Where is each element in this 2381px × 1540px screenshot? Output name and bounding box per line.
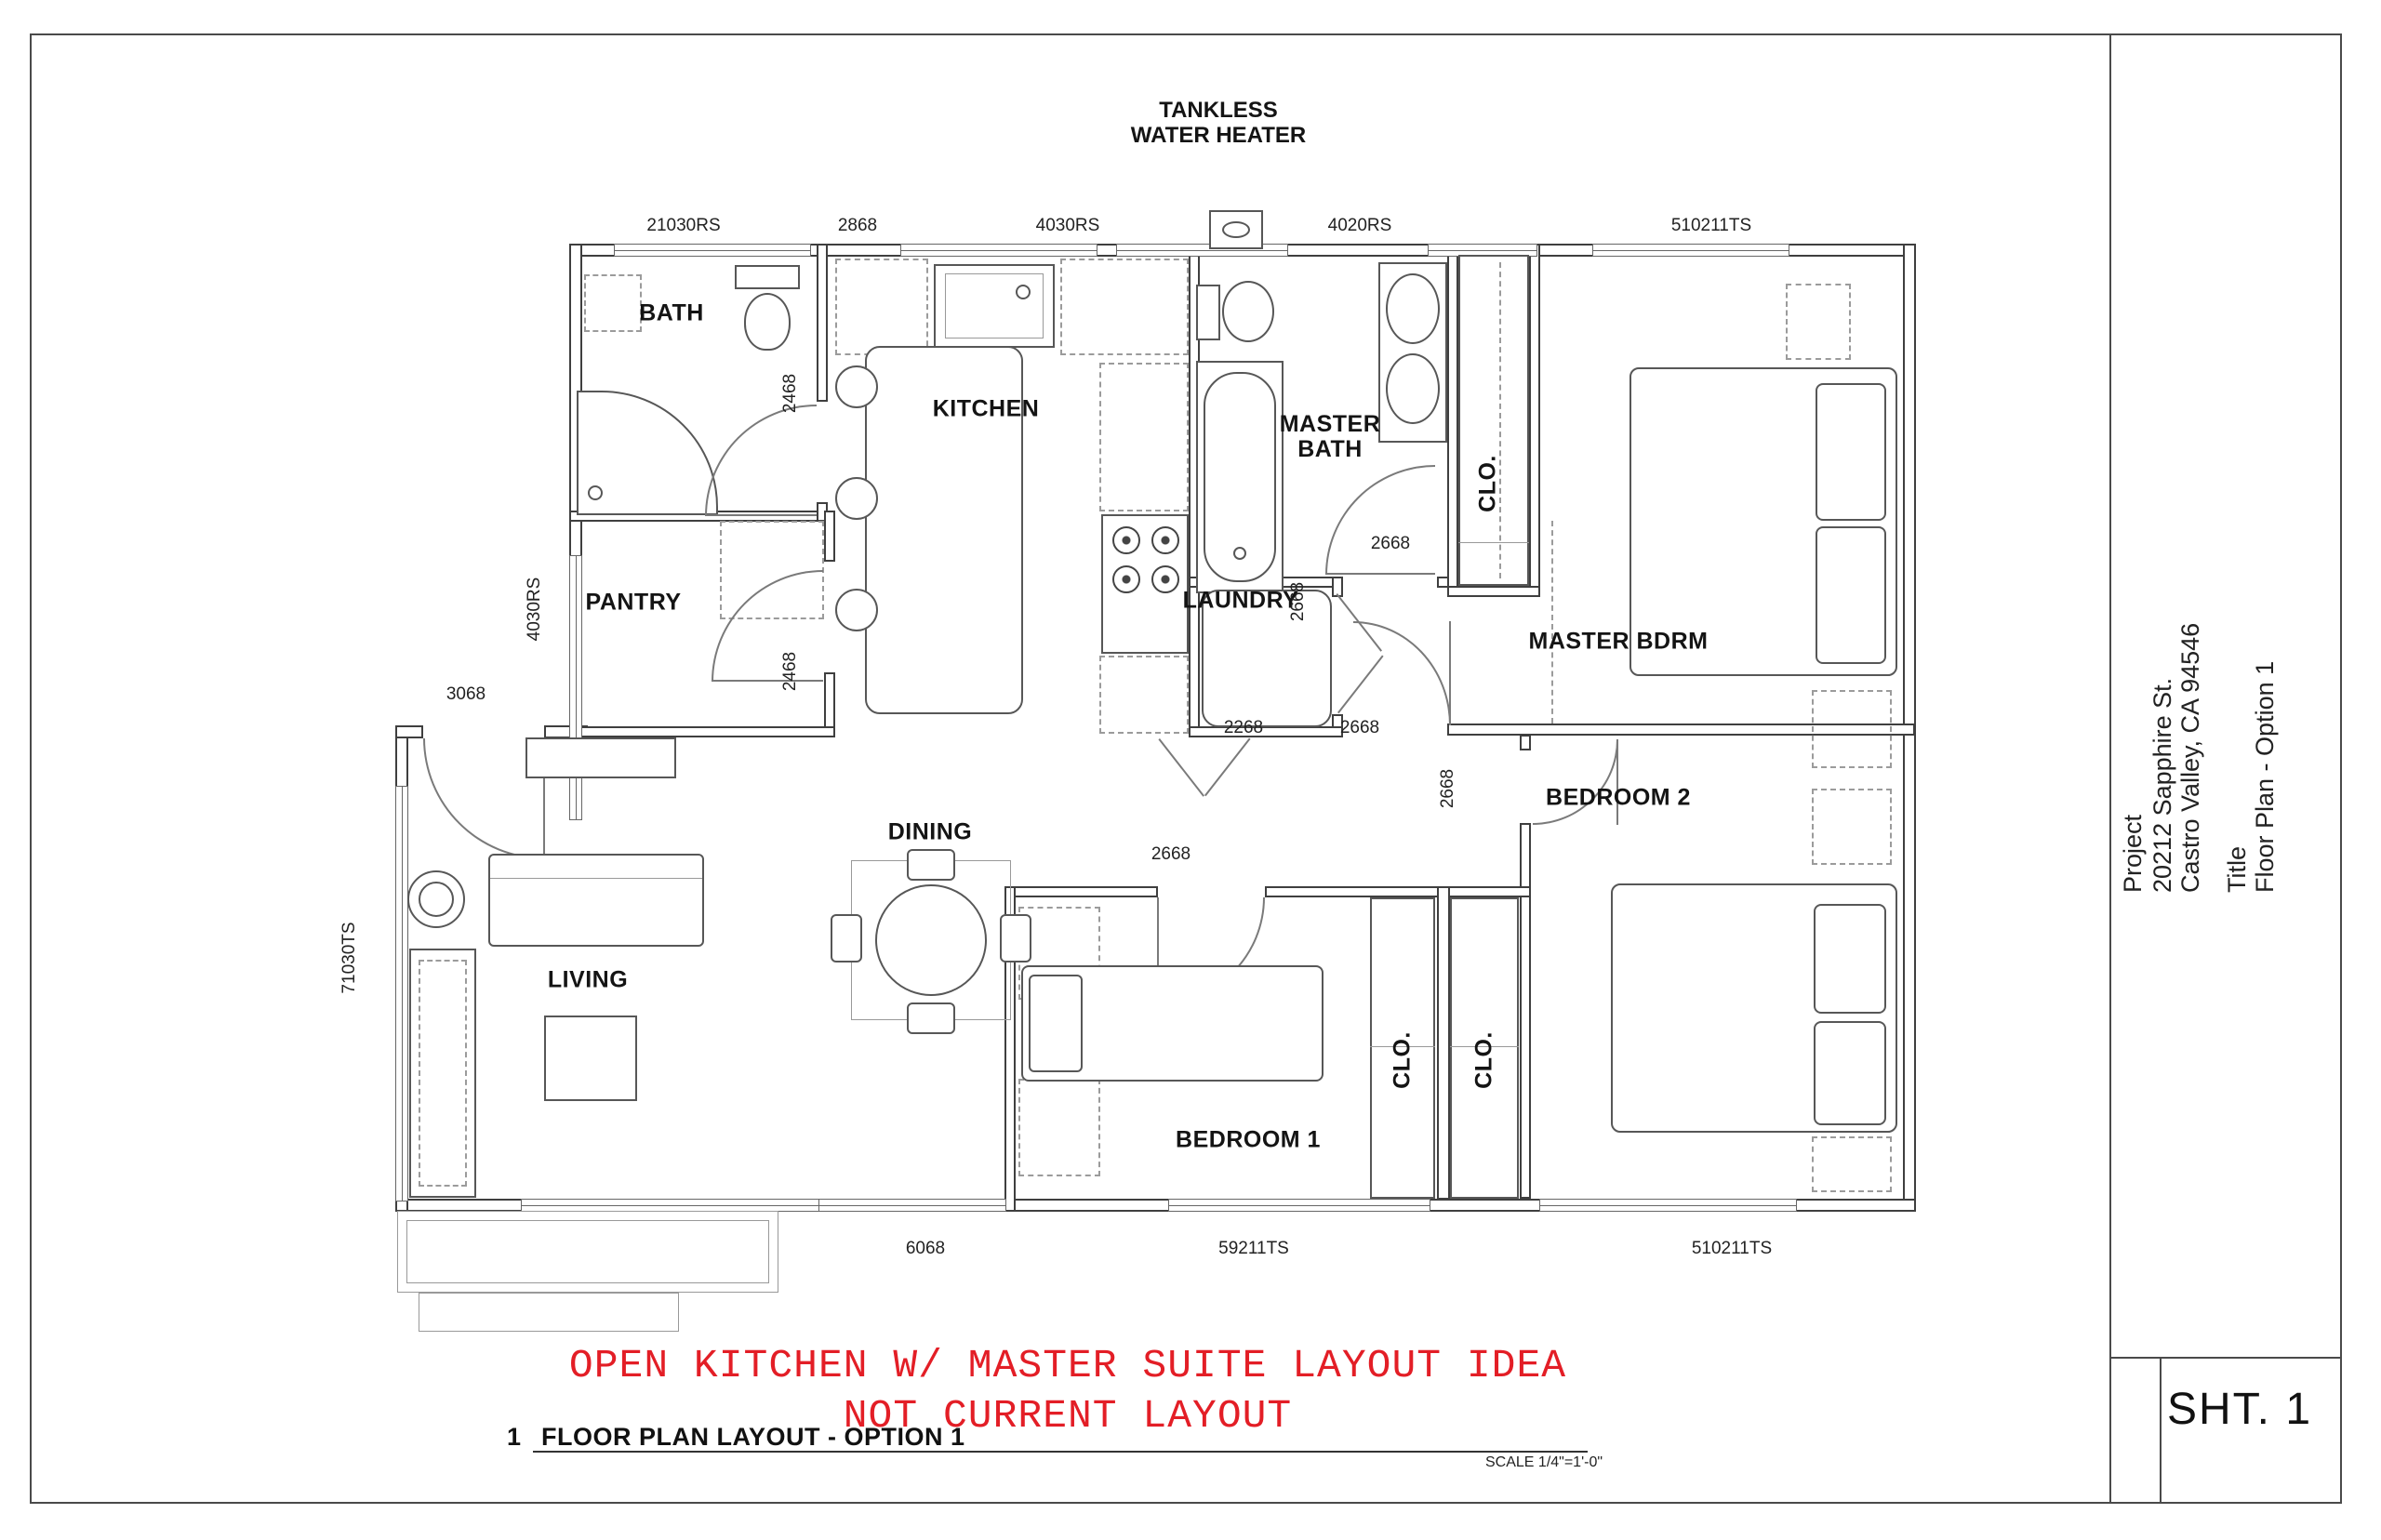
- window: [395, 786, 408, 1201]
- dim-label: 6068: [906, 1239, 945, 1259]
- master-closet: [1458, 255, 1529, 586]
- room-label-master-bath: MASTER BATH: [1270, 412, 1390, 462]
- dim-label: 4020RS: [1328, 216, 1392, 236]
- dim-label: 21030RS: [646, 216, 720, 236]
- drawing-sheet: TANKLESS WATER HEATER BATH KITCHEN MASTE…: [0, 0, 2381, 1540]
- tankless-water-heater-valve: [1222, 221, 1250, 238]
- stove-burner: [1112, 565, 1140, 593]
- pillow: [1029, 975, 1083, 1072]
- master-toilet-bowl: [1222, 281, 1274, 342]
- room-label-kitchen: KITCHEN: [933, 396, 1040, 423]
- room-label-bedroom1: BEDROOM 1: [1176, 1127, 1321, 1154]
- wall: [1520, 735, 1531, 750]
- ceiling-break-line: [1551, 521, 1553, 724]
- dim-label: 4030RS: [1036, 216, 1100, 236]
- vanity-sink: [1386, 353, 1440, 424]
- room-label-dining: DINING: [888, 819, 973, 846]
- bedroom2-door-leaf: [1616, 739, 1618, 825]
- dim-label: 2668: [1371, 534, 1410, 554]
- stove-burner: [1112, 526, 1140, 554]
- dim-label: 71030TS: [339, 922, 360, 993]
- window: [569, 555, 582, 820]
- room-label-master-bdrm: MASTER BDRM: [1529, 629, 1709, 656]
- coffee-table: [544, 1016, 637, 1101]
- title-block-divider: [2109, 33, 2111, 1504]
- console-table: [525, 737, 676, 778]
- kitchen-sink-basin: [945, 273, 1044, 339]
- project-label: Project: [2119, 815, 2147, 893]
- scale-note: SCALE 1/4"=1'-0": [1485, 1454, 1603, 1471]
- wall: [1437, 886, 1450, 1200]
- sofa: [488, 854, 704, 947]
- window: [1539, 1199, 1797, 1212]
- dim-label: 59211TS: [1218, 1239, 1289, 1259]
- sheet-box-divider: [2109, 1357, 2342, 1359]
- dining-table: [875, 884, 987, 996]
- title-value: Floor Plan - Option 1: [2251, 661, 2279, 893]
- toilet-bowl: [744, 293, 791, 351]
- sheet-box-left-line: [2160, 1357, 2162, 1504]
- window: [1168, 1199, 1430, 1212]
- dim-label: 2868: [838, 216, 877, 236]
- bar-stool: [835, 477, 878, 520]
- sheet-number: SHT. 1: [2167, 1384, 2312, 1435]
- bathtub-drain: [1233, 547, 1246, 560]
- caption-title: FLOOR PLAN LAYOUT - OPTION 1: [541, 1423, 965, 1452]
- dining-chair: [907, 1002, 955, 1034]
- pantry-door-leaf: [712, 680, 823, 682]
- porch-inner: [406, 1220, 769, 1283]
- pillow: [1816, 526, 1886, 664]
- stove-burner: [1151, 565, 1179, 593]
- window: [614, 244, 811, 257]
- bar-stool: [835, 589, 878, 631]
- dim-label: 510211TS: [1671, 216, 1751, 236]
- shower-drain: [588, 485, 603, 500]
- nightstand: [1812, 789, 1892, 865]
- wall: [1529, 244, 1540, 597]
- dim-label: 2468: [780, 652, 801, 691]
- sliding-door: [818, 1199, 1006, 1212]
- window-bench-cushion: [419, 960, 467, 1187]
- bath-door-leaf: [705, 514, 817, 516]
- nightstand: [1786, 284, 1851, 360]
- wall: [569, 726, 835, 737]
- dim-label: 3068: [446, 684, 486, 705]
- dim-label: 2668: [1288, 582, 1309, 621]
- master-bdrm-door-leaf: [1449, 621, 1451, 725]
- wall: [395, 725, 423, 738]
- pillow: [1816, 383, 1886, 521]
- title-label: Title: [2223, 846, 2251, 893]
- dim-label: 4030RS: [525, 577, 545, 642]
- pillow: [1814, 1021, 1886, 1125]
- dining-chair: [831, 914, 862, 962]
- sink-faucet: [1016, 285, 1031, 299]
- dim-label: 2668: [1151, 844, 1190, 865]
- wall: [1520, 823, 1531, 1199]
- room-label-closet2: CLO.: [1471, 1031, 1498, 1089]
- upper-cabinet: [1060, 259, 1189, 355]
- room-label-bath: BATH: [639, 300, 704, 327]
- project-address-line1: 20212 Sapphire St.: [2148, 678, 2176, 893]
- pillow: [1814, 904, 1886, 1014]
- master-bath-door-leaf: [1325, 573, 1435, 575]
- bar-stool: [835, 365, 878, 408]
- dining-chair: [907, 849, 955, 881]
- room-label-laundry: LAUNDRY: [1183, 588, 1299, 615]
- caption-underline: [533, 1451, 1588, 1453]
- dim-label: 2668: [1340, 718, 1379, 738]
- toilet-tank: [735, 265, 800, 289]
- room-label-living: LIVING: [548, 967, 628, 994]
- nightstand: [1812, 690, 1892, 768]
- closet-box: [1018, 1079, 1100, 1176]
- window: [521, 1199, 820, 1212]
- caption-number: 1: [507, 1423, 521, 1452]
- closet-shelf-line: [1458, 542, 1529, 543]
- room-label-bedroom2: BEDROOM 2: [1546, 785, 1691, 812]
- dim-label: 2468: [780, 374, 801, 413]
- window: [900, 244, 1097, 257]
- wall: [1447, 586, 1540, 597]
- bath-access-panel: [584, 274, 642, 332]
- dim-label: 510211TS: [1692, 1239, 1772, 1259]
- wall: [1447, 244, 1458, 597]
- upper-cabinet: [835, 259, 928, 355]
- tankless-label: TANKLESS WATER HEATER: [1128, 98, 1310, 148]
- closet-rod: [1499, 262, 1501, 578]
- dim-label: 2668: [1438, 769, 1458, 808]
- project-address-line2: Castro Valley, CA 94546: [2176, 623, 2204, 893]
- round-chair-seat: [419, 882, 454, 917]
- wall: [817, 244, 828, 402]
- room-label-master-closet: CLO.: [1475, 455, 1502, 512]
- porch-step: [419, 1293, 679, 1332]
- lower-cabinet: [1099, 656, 1189, 734]
- wall: [824, 511, 835, 562]
- wall: [1265, 886, 1531, 897]
- window: [1592, 244, 1789, 257]
- lower-cabinet: [1099, 363, 1189, 511]
- room-label-closet1: CLO.: [1390, 1031, 1417, 1089]
- dim-label: 2268: [1224, 718, 1263, 738]
- master-toilet-tank: [1196, 285, 1220, 340]
- dining-chair: [1000, 914, 1031, 962]
- wall: [1004, 886, 1158, 897]
- sofa-back-line: [490, 878, 702, 879]
- nightstand: [1812, 1136, 1892, 1192]
- vanity-sink: [1386, 273, 1440, 344]
- note-line-1: OPEN KITCHEN W/ MASTER SUITE LAYOUT IDEA: [569, 1343, 1566, 1388]
- room-label-pantry: PANTRY: [586, 590, 682, 617]
- stove-burner: [1151, 526, 1179, 554]
- wall: [1189, 726, 1343, 737]
